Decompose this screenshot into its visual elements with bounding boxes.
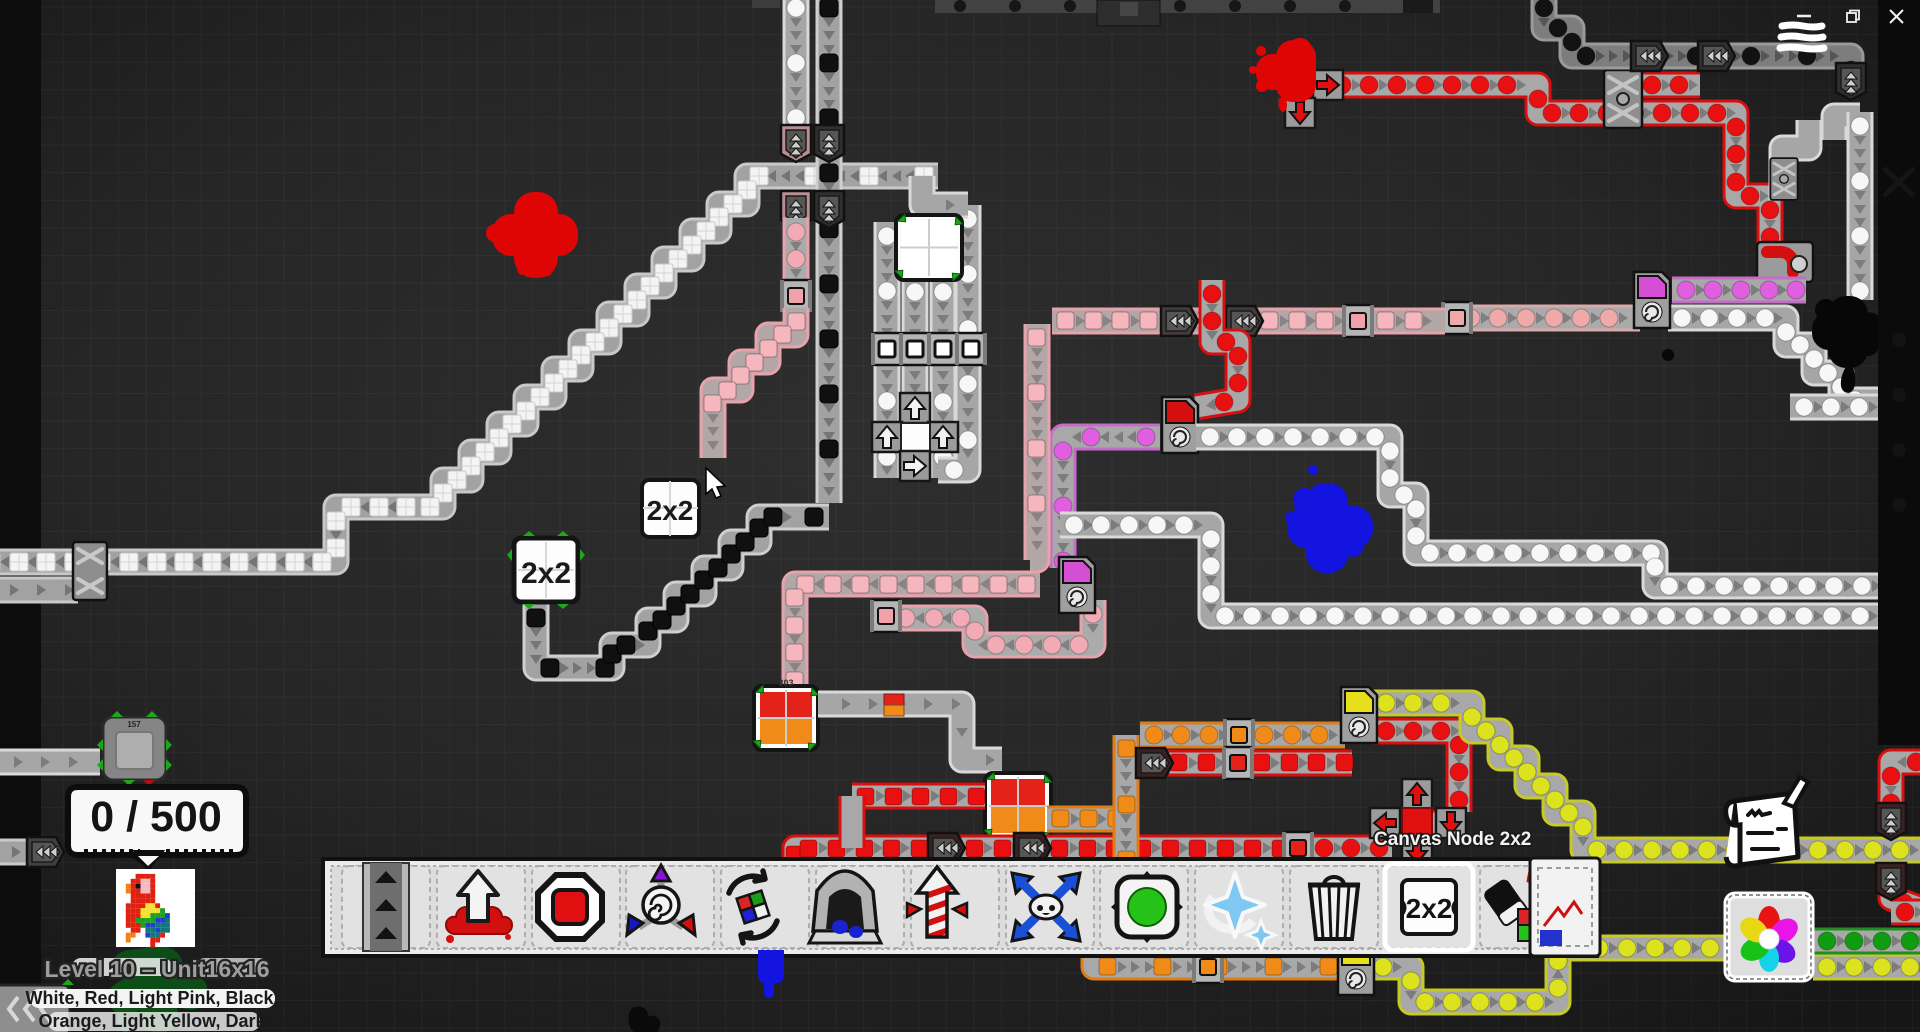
svg-text:157: 157 xyxy=(127,720,141,729)
svg-text:2x2: 2x2 xyxy=(1406,893,1453,924)
svg-text:Orange, Light Yellow, Dark: Orange, Light Yellow, Dark xyxy=(38,1011,266,1031)
svg-text:0 / 500: 0 / 500 xyxy=(90,793,222,841)
svg-text:2x2: 2x2 xyxy=(647,495,694,526)
svg-text:White, Red, Light Pink, Black,: White, Red, Light Pink, Black, xyxy=(25,988,278,1008)
svg-text:303: 303 xyxy=(778,678,793,688)
svg-text:2x2: 2x2 xyxy=(521,557,571,590)
svg-text:Level 10 – Unit16x16: Level 10 – Unit16x16 xyxy=(44,956,269,982)
svg-text:Canvas Node 2x2: Canvas Node 2x2 xyxy=(1374,829,1531,850)
